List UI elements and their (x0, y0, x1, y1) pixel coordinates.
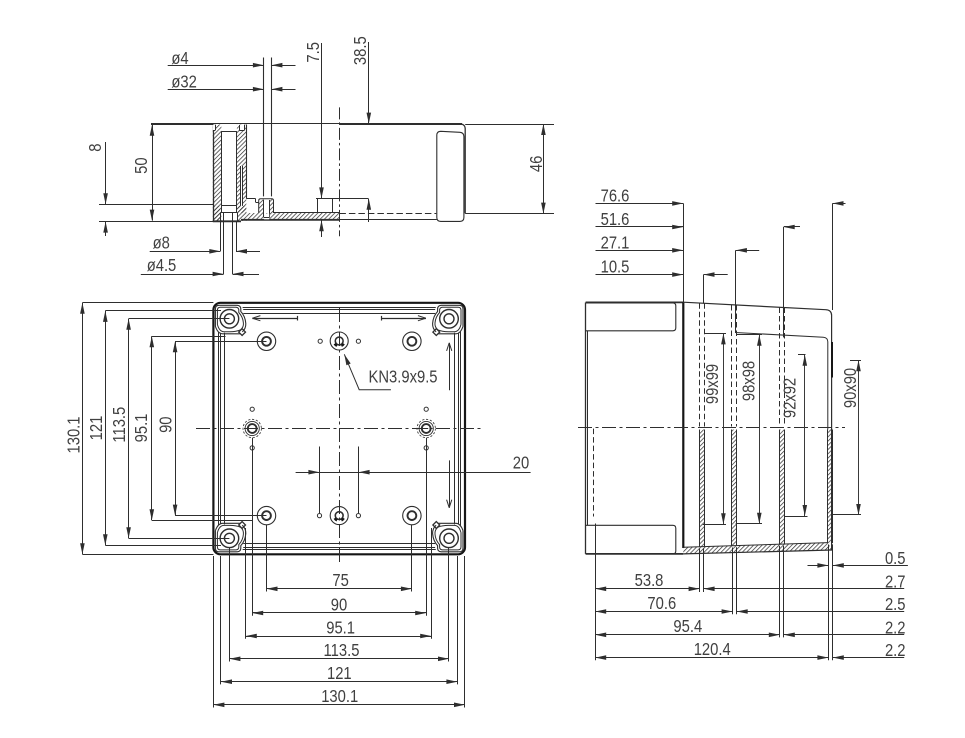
svg-text:90: 90 (331, 595, 348, 614)
svg-text:130.1: 130.1 (321, 687, 358, 706)
svg-text:20: 20 (513, 453, 530, 472)
svg-text:95.1: 95.1 (132, 414, 151, 443)
svg-text:130.1: 130.1 (65, 416, 84, 453)
svg-text:92x92: 92x92 (780, 378, 799, 418)
svg-text:KN3.9x9.5: KN3.9x9.5 (369, 368, 438, 387)
svg-text:95.4: 95.4 (673, 617, 702, 636)
svg-text:38.5: 38.5 (351, 36, 370, 65)
svg-text:121: 121 (87, 416, 106, 441)
svg-text:90: 90 (156, 416, 175, 433)
svg-text:7.5: 7.5 (304, 42, 323, 63)
svg-text:70.6: 70.6 (647, 594, 676, 613)
svg-text:2.7: 2.7 (885, 572, 906, 591)
svg-text:8: 8 (86, 144, 105, 152)
svg-text:2.2: 2.2 (885, 641, 906, 660)
svg-text:113.5: 113.5 (110, 407, 129, 443)
svg-text:98x98: 98x98 (739, 361, 758, 401)
svg-text:27.1: 27.1 (601, 233, 630, 252)
svg-text:53.8: 53.8 (635, 571, 664, 590)
svg-text:ø8: ø8 (153, 233, 170, 252)
svg-text:90x90: 90x90 (841, 368, 860, 408)
svg-text:ø4.5: ø4.5 (147, 256, 177, 275)
svg-text:121: 121 (327, 664, 352, 683)
svg-text:ø32: ø32 (171, 72, 197, 91)
svg-text:95.1: 95.1 (326, 618, 355, 637)
svg-text:76.6: 76.6 (601, 186, 630, 205)
svg-text:120.4: 120.4 (694, 640, 731, 659)
svg-text:2.5: 2.5 (885, 595, 906, 614)
svg-text:50: 50 (132, 157, 151, 174)
svg-text:113.5: 113.5 (324, 641, 360, 660)
svg-text:2.2: 2.2 (885, 618, 906, 637)
svg-text:75: 75 (332, 571, 349, 590)
svg-text:99x99: 99x99 (703, 364, 722, 404)
